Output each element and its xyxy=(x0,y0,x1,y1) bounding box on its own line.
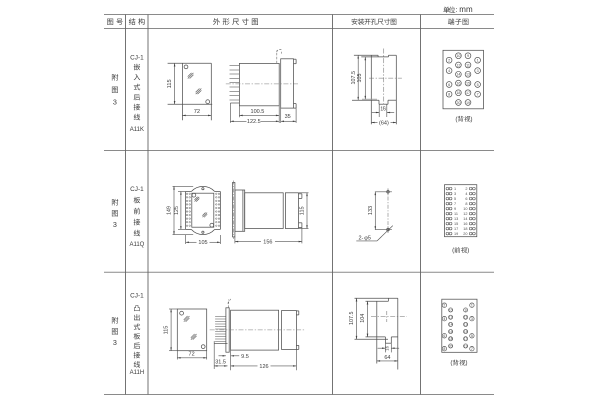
svg-text:17: 17 xyxy=(454,227,458,231)
svg-text:2: 2 xyxy=(448,59,450,63)
svg-text:9: 9 xyxy=(467,54,469,58)
svg-text:4: 4 xyxy=(465,192,467,196)
svg-text:122.5: 122.5 xyxy=(247,119,261,125)
svg-text:104: 104 xyxy=(360,314,366,323)
svg-text:4: 4 xyxy=(443,317,445,321)
svg-text:20: 20 xyxy=(463,232,467,236)
svg-text:3: 3 xyxy=(477,69,479,73)
svg-text:133: 133 xyxy=(368,206,374,215)
svg-text:1: 1 xyxy=(477,59,479,63)
svg-text::: : xyxy=(455,7,457,14)
svg-text:18: 18 xyxy=(449,337,453,341)
svg-text:CJ-1: CJ-1 xyxy=(130,186,144,193)
svg-text:11: 11 xyxy=(466,63,470,67)
svg-text:13: 13 xyxy=(464,323,468,327)
svg-text:9: 9 xyxy=(465,308,467,312)
svg-text:9: 9 xyxy=(454,207,456,211)
svg-text:8: 8 xyxy=(448,93,450,97)
svg-text:2: 2 xyxy=(443,304,445,308)
svg-text:12: 12 xyxy=(456,63,460,67)
svg-text:7: 7 xyxy=(477,93,479,97)
svg-text:35: 35 xyxy=(285,114,291,120)
svg-text:19: 19 xyxy=(454,232,458,236)
svg-text:16: 16 xyxy=(385,345,390,350)
svg-text:14: 14 xyxy=(463,217,467,221)
svg-text:149: 149 xyxy=(166,206,172,215)
svg-text:115: 115 xyxy=(164,326,170,335)
svg-text:mm: mm xyxy=(459,5,473,14)
svg-text:15: 15 xyxy=(464,330,468,334)
svg-text:15: 15 xyxy=(466,82,470,86)
svg-text:31.5: 31.5 xyxy=(215,359,226,365)
svg-text:72: 72 xyxy=(194,109,200,115)
svg-text:6: 6 xyxy=(448,83,450,87)
svg-text:5: 5 xyxy=(454,197,456,201)
svg-text:CJ-1: CJ-1 xyxy=(130,54,144,61)
svg-text:CJ-1: CJ-1 xyxy=(130,292,144,299)
svg-text:20: 20 xyxy=(456,101,460,105)
svg-text:(64): (64) xyxy=(379,121,389,127)
svg-text:100.5: 100.5 xyxy=(251,109,265,115)
svg-text:13: 13 xyxy=(454,217,458,221)
svg-text:1: 1 xyxy=(454,187,456,191)
svg-text:A11Q: A11Q xyxy=(129,242,144,248)
svg-text:11: 11 xyxy=(454,212,458,216)
svg-text:16: 16 xyxy=(449,330,453,334)
svg-text:4: 4 xyxy=(448,69,450,73)
svg-text:126: 126 xyxy=(259,364,268,370)
svg-text:): ) xyxy=(465,360,467,367)
svg-text:2: 2 xyxy=(465,187,467,191)
svg-text:7: 7 xyxy=(454,202,456,206)
svg-text:19: 19 xyxy=(464,344,468,348)
svg-text:φ5: φ5 xyxy=(364,236,371,242)
svg-text:7: 7 xyxy=(471,347,473,351)
svg-text:15: 15 xyxy=(454,222,458,226)
svg-text:115: 115 xyxy=(167,79,173,88)
svg-text:): ) xyxy=(470,116,472,123)
svg-text:): ) xyxy=(467,247,469,254)
svg-text:2-: 2- xyxy=(358,236,363,242)
svg-text:10: 10 xyxy=(456,54,460,58)
svg-text:16: 16 xyxy=(463,222,467,226)
svg-text:12: 12 xyxy=(463,212,467,216)
svg-text:10: 10 xyxy=(463,207,467,211)
svg-text:3: 3 xyxy=(471,317,473,321)
svg-text:18: 18 xyxy=(456,91,460,95)
svg-text:1: 1 xyxy=(471,304,473,308)
svg-text:3: 3 xyxy=(113,220,117,229)
svg-text:3: 3 xyxy=(113,98,117,107)
svg-text:105: 105 xyxy=(198,240,207,246)
svg-text:16: 16 xyxy=(380,106,386,112)
svg-text:13: 13 xyxy=(466,73,470,77)
svg-text:18: 18 xyxy=(463,227,467,231)
svg-text:14: 14 xyxy=(449,323,453,327)
svg-text:9.5: 9.5 xyxy=(241,354,249,360)
svg-text:17: 17 xyxy=(466,91,470,95)
svg-text:A11K: A11K xyxy=(130,127,144,133)
svg-text:125: 125 xyxy=(174,206,180,215)
svg-text:156: 156 xyxy=(263,240,272,246)
svg-text:12: 12 xyxy=(449,315,453,319)
svg-text:5: 5 xyxy=(477,83,479,87)
svg-text:3: 3 xyxy=(113,338,117,347)
svg-text:5: 5 xyxy=(471,334,473,338)
svg-text:17: 17 xyxy=(464,337,468,341)
svg-text:20: 20 xyxy=(449,344,453,348)
svg-text:105: 105 xyxy=(357,74,363,83)
svg-text:16: 16 xyxy=(456,82,460,86)
svg-text:19: 19 xyxy=(466,101,470,105)
svg-text:72: 72 xyxy=(189,351,195,357)
svg-text:6: 6 xyxy=(465,197,467,201)
svg-text:6: 6 xyxy=(443,334,445,338)
svg-text:107.5: 107.5 xyxy=(349,311,355,325)
svg-text:A11H: A11H xyxy=(130,370,145,376)
svg-text:115: 115 xyxy=(300,206,306,215)
svg-text:11: 11 xyxy=(464,315,468,319)
svg-text:3: 3 xyxy=(454,192,456,196)
svg-text:64: 64 xyxy=(384,355,390,361)
svg-text:8: 8 xyxy=(465,202,467,206)
svg-text:14: 14 xyxy=(456,73,460,77)
svg-text:107.5: 107.5 xyxy=(351,71,357,85)
svg-text:8: 8 xyxy=(443,347,445,351)
svg-text:10: 10 xyxy=(449,308,453,312)
